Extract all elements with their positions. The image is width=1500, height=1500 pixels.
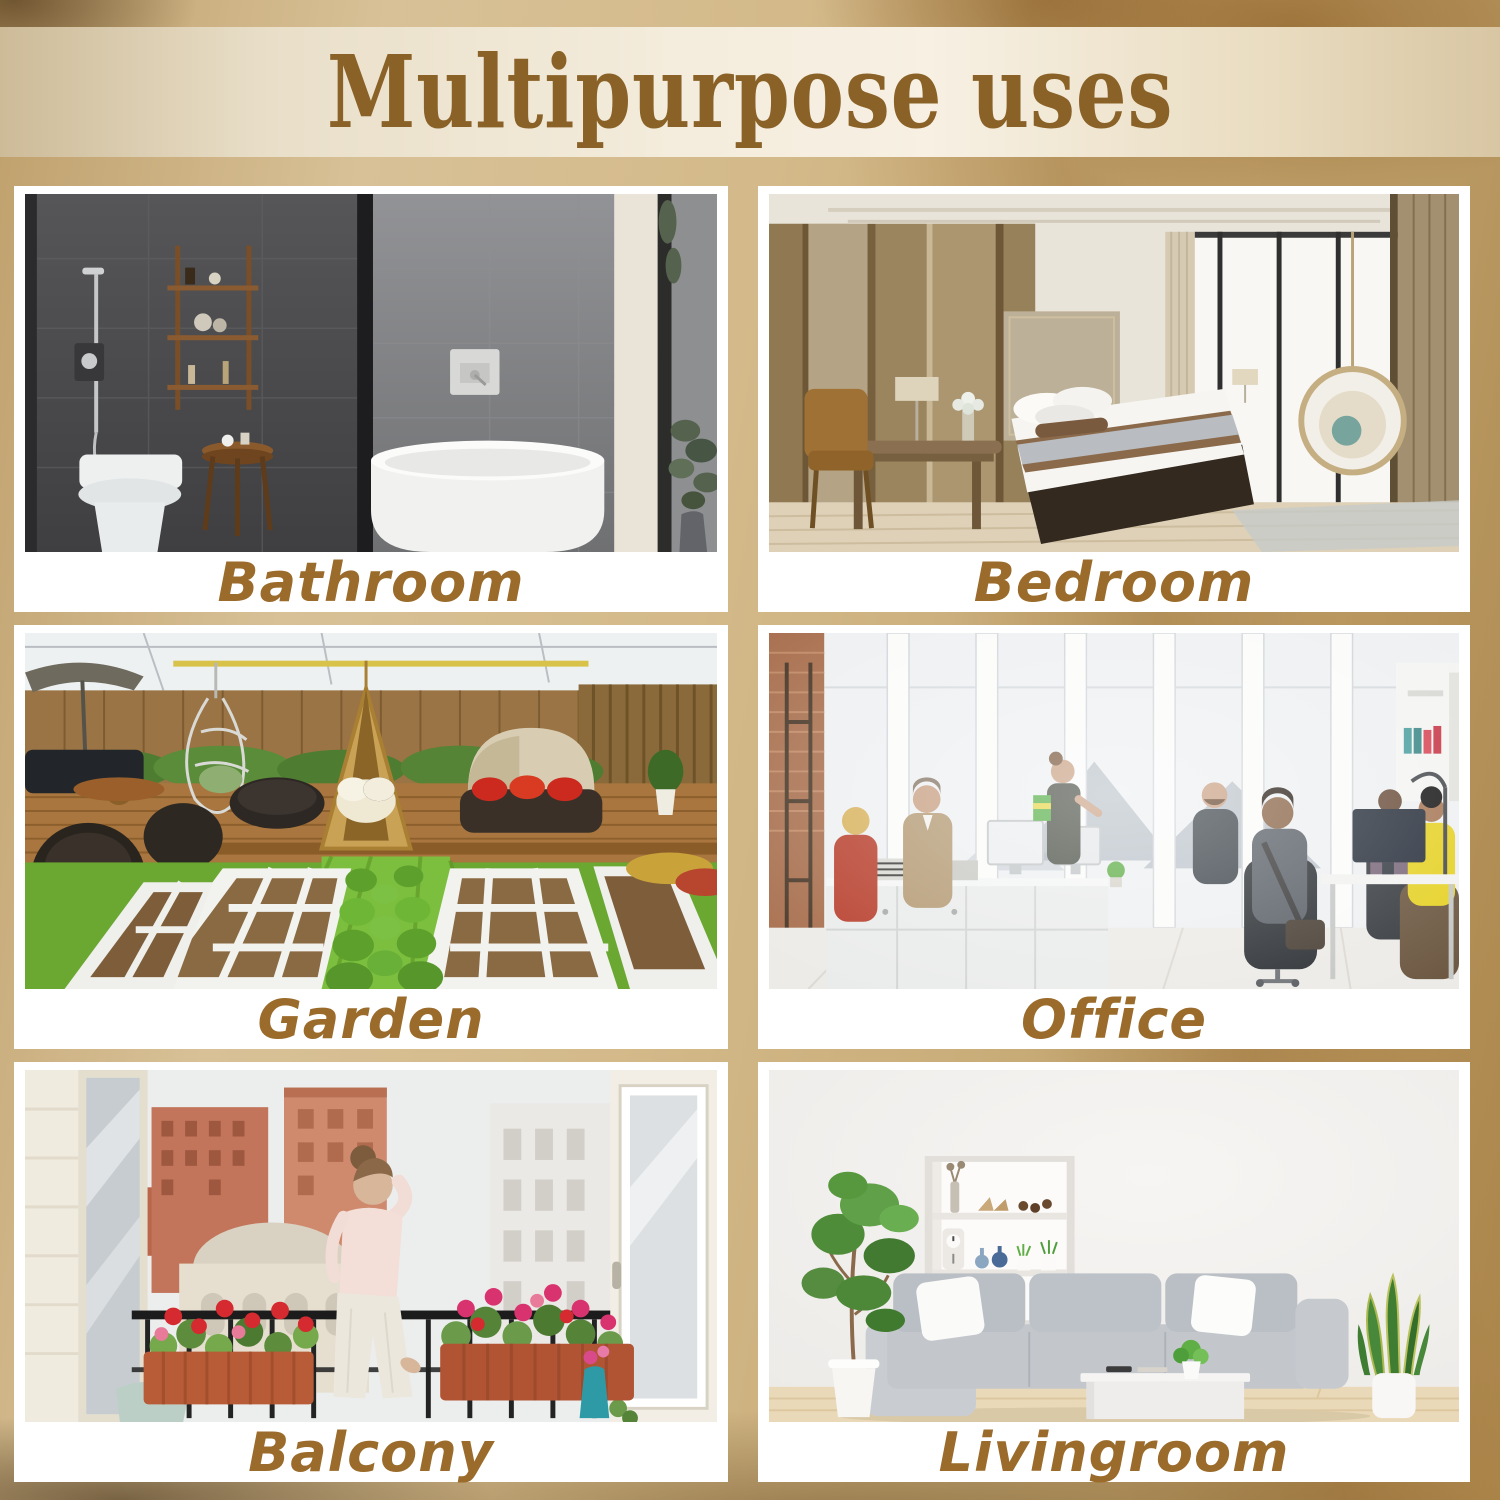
office-photo — [769, 633, 1459, 989]
livingroom-label: Livingroom — [769, 1422, 1459, 1482]
bedroom-label: Bedroom — [769, 552, 1459, 612]
usecase-card-office: Office — [758, 625, 1470, 1049]
livingroom-photo — [769, 1070, 1459, 1422]
usecase-card-bathroom: Bathroom — [14, 186, 728, 612]
usecase-card-balcony: Balcony — [14, 1062, 728, 1482]
promo-image: Multipurpose uses — [0, 0, 1500, 1500]
office-label: Office — [769, 989, 1459, 1049]
garden-label: Garden — [25, 989, 717, 1049]
bathroom-label: Bathroom — [25, 552, 717, 612]
bedroom-photo — [769, 194, 1459, 552]
usecase-grid: Bathroom — [14, 186, 1470, 1482]
usecase-card-bedroom: Bedroom — [758, 186, 1470, 612]
usecase-card-livingroom: Livingroom — [758, 1062, 1470, 1482]
page-title: Multipurpose uses — [327, 42, 1174, 142]
title-banner: Multipurpose uses — [0, 27, 1500, 157]
balcony-label: Balcony — [25, 1422, 717, 1482]
bathroom-photo — [25, 194, 717, 552]
usecase-card-garden: Garden — [14, 625, 728, 1049]
balcony-photo — [25, 1070, 717, 1422]
garden-photo — [25, 633, 717, 989]
